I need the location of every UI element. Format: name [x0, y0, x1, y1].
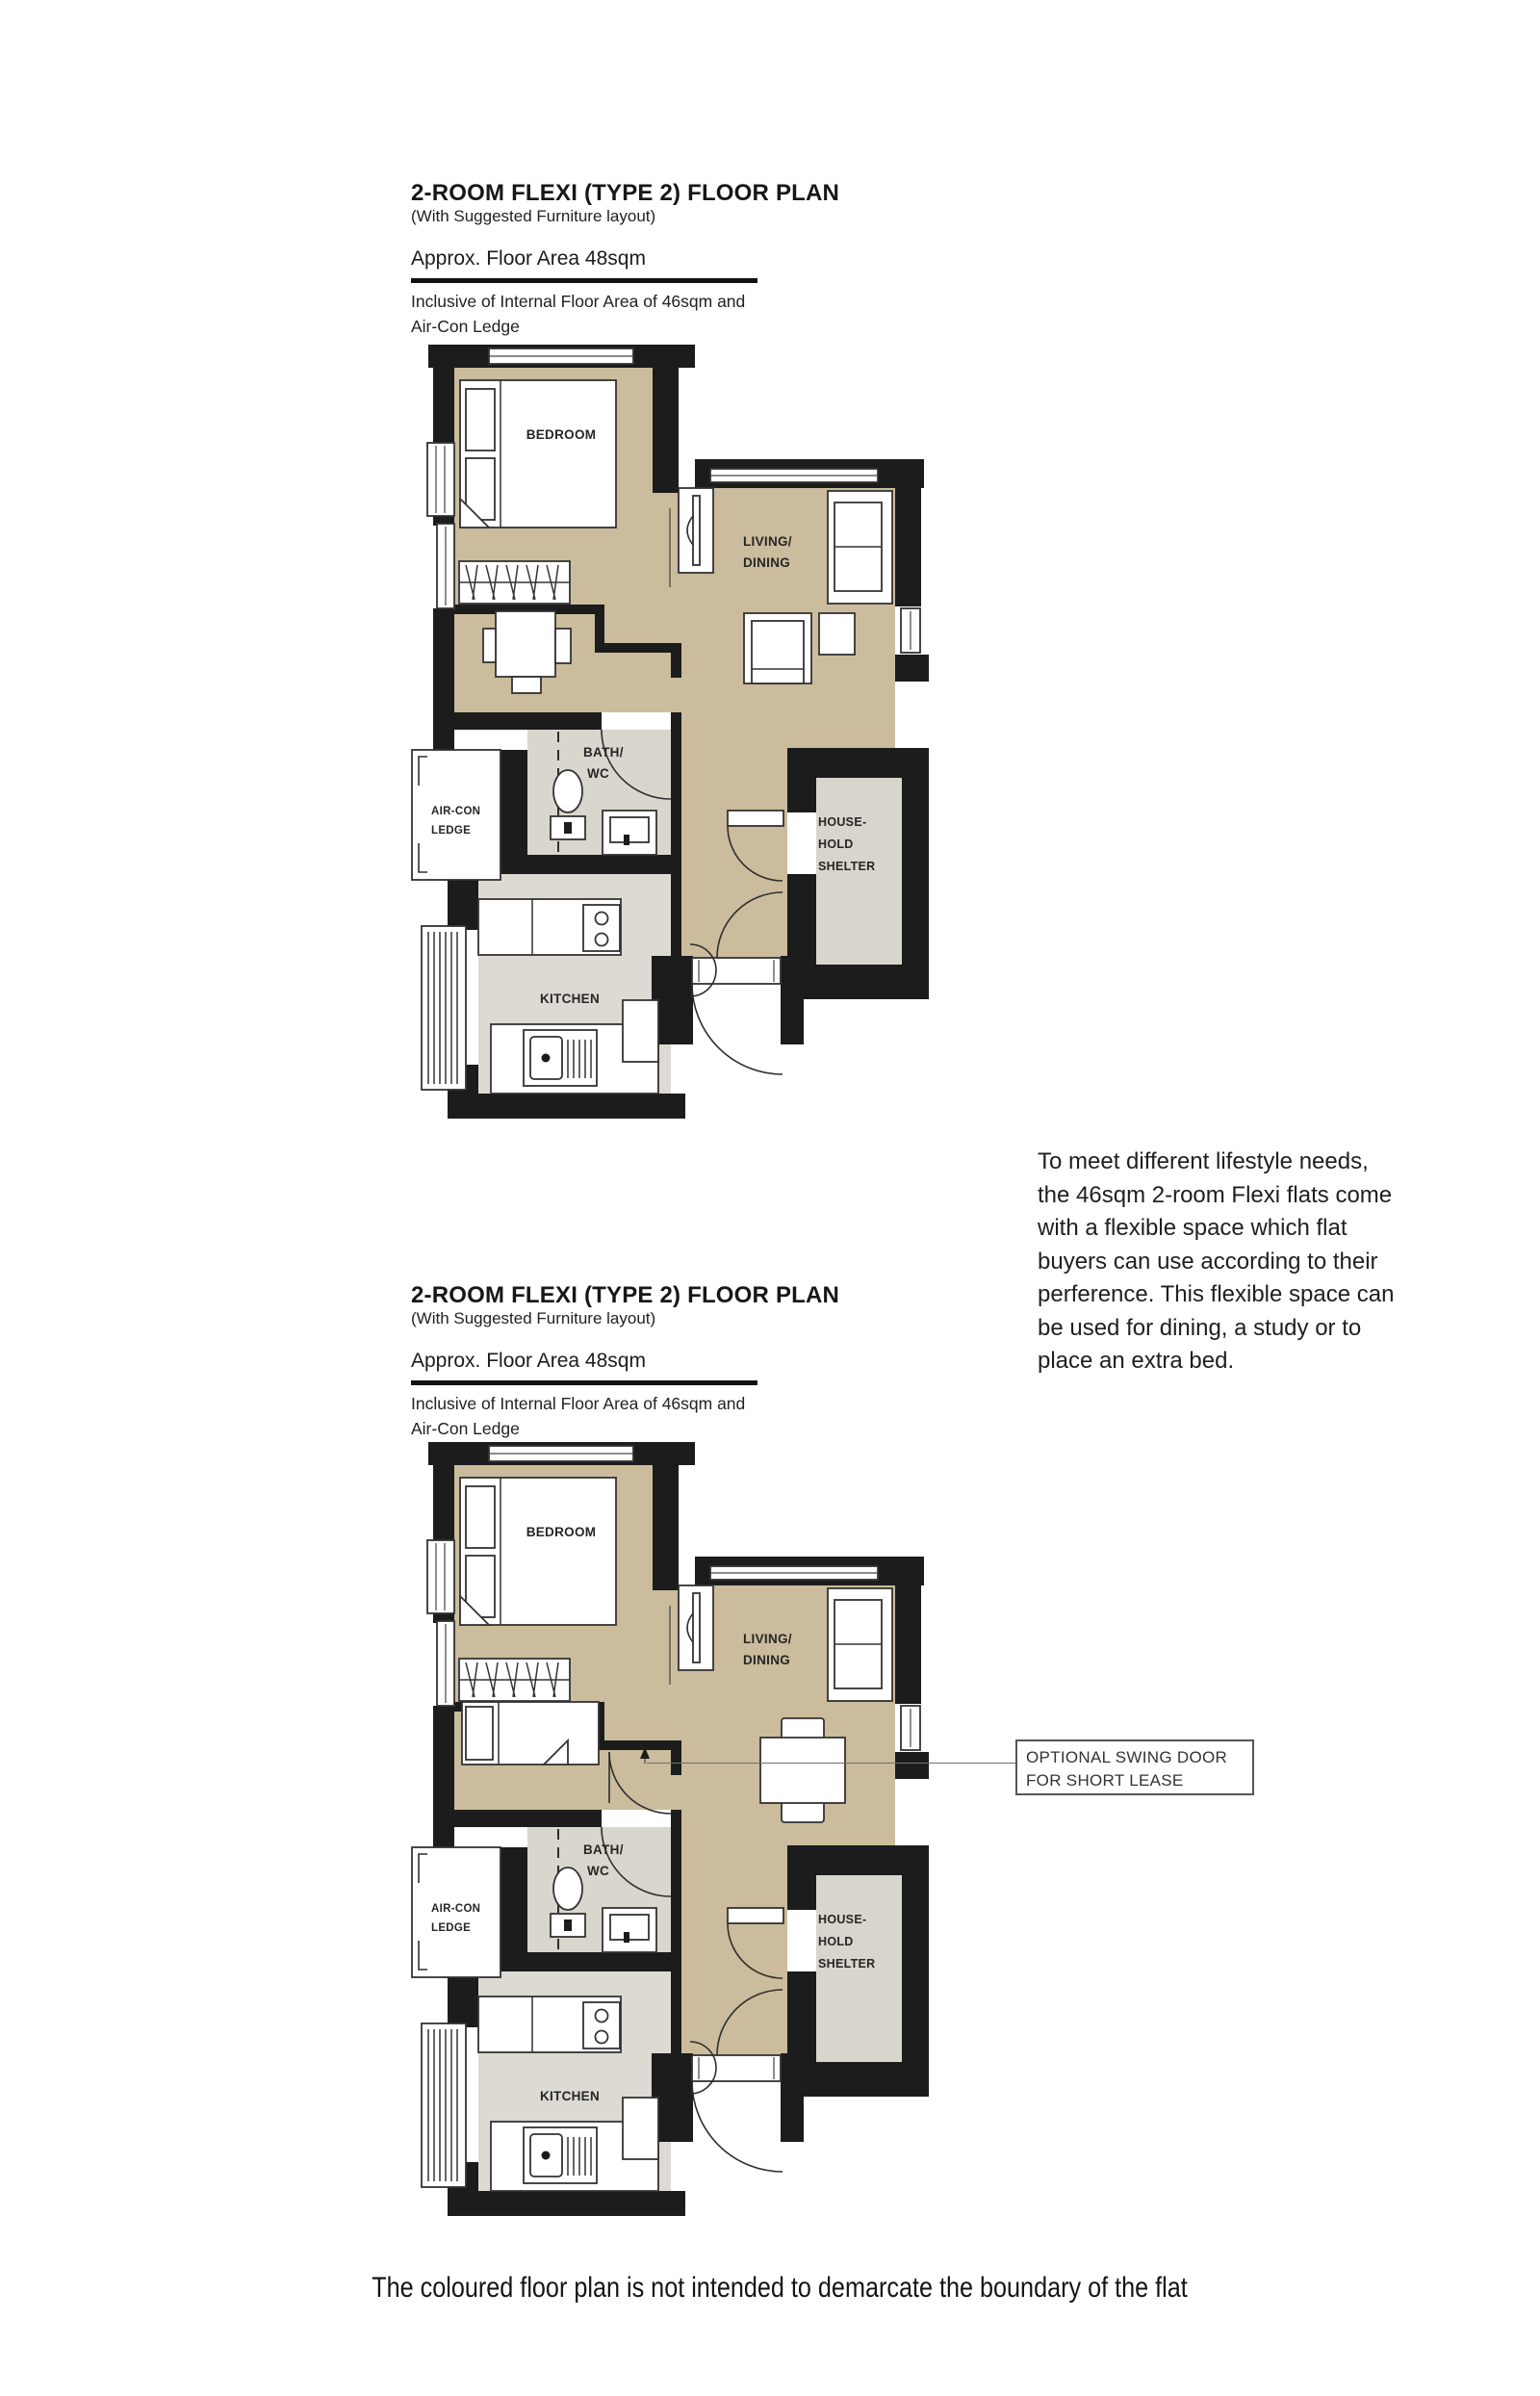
plan1-title: 2-ROOM FLEXI (TYPE 2) FLOOR PLAN — [411, 181, 863, 205]
callout-leader-line — [647, 1763, 1015, 1764]
plan1-living-label-1: LIVING/ — [743, 534, 792, 549]
plan2-single-bed — [462, 1702, 599, 1765]
plan2-title: 2-ROOM FLEXI (TYPE 2) FLOOR PLAN — [411, 1283, 863, 1307]
plan1-sofa — [828, 491, 892, 604]
plan1-inclusive-line2: Air-Con Ledge — [411, 317, 520, 336]
plan2-divider-rule — [411, 1380, 757, 1385]
plan1-divider-rule — [411, 278, 757, 283]
plan2-kitchen-label: KITCHEN — [540, 2089, 600, 2103]
plan1-armchair — [744, 613, 811, 683]
plan1-aircon-label-2: LEDGE — [431, 825, 471, 837]
plan2-living-label-2: DINING — [743, 1653, 790, 1667]
plan1-shelter-label-2: HOLD — [818, 837, 854, 851]
plan2-living-label-1: LIVING/ — [743, 1632, 792, 1646]
plan1-living-label-2: DINING — [743, 555, 790, 570]
plan1-kitchen-label: KITCHEN — [540, 992, 600, 1006]
plan2-aircon-label-2: LEDGE — [431, 1922, 471, 1934]
plan2-wardrobe — [459, 1659, 570, 1701]
plan2-shelter-door-gap — [787, 1910, 816, 1971]
intro-line: To meet different lifestyle needs, — [1038, 1146, 1519, 1179]
plan1-shelter-label-3: SHELTER — [818, 860, 876, 873]
callout-line1: OPTIONAL SWING DOOR — [1026, 1746, 1252, 1769]
plan1-double-bed — [460, 380, 616, 528]
intro-line: buyers can use according to their — [1038, 1246, 1519, 1279]
intro-line: the 46sqm 2-room Flexi flats come — [1038, 1179, 1519, 1213]
floor-plan-2: BEDROOM LIVING/ DINING — [404, 1434, 972, 2224]
plan2-aircon-label-1: AIR-CON — [431, 1903, 480, 1915]
plan1-side-table — [819, 613, 855, 655]
intro-line: place an extra bed. — [1038, 1345, 1519, 1378]
floor-plan-1: BEDROOM LIVING/ DINING — [404, 337, 972, 1126]
plan1-tv-console — [679, 488, 713, 573]
plan2-bath-label-1: BATH/ — [583, 1842, 624, 1857]
plan1-aircon-label-1: AIR-CON — [431, 806, 480, 817]
plan2-sofa — [828, 1588, 892, 1701]
plan1-bath-label-1: BATH/ — [583, 745, 624, 760]
plan1-bath-label-2: WC — [587, 766, 609, 781]
floor-plan-sheet: { "plan1": { "header": { "title": "2-ROO… — [0, 0, 1540, 2396]
plan1-shelter-door-gap — [787, 812, 816, 874]
plan1-wardrobe — [459, 561, 570, 604]
plan1-floor-area: Approx. Floor Area 48sqm — [411, 247, 863, 271]
plan2-shelter-label-1: HOUSE- — [818, 1913, 866, 1926]
intro-line: with a flexible space which flat — [1038, 1212, 1519, 1246]
intro-paragraph: To meet different lifestyle needs, the 4… — [1038, 1146, 1519, 1378]
intro-line: be used for dining, a study or to — [1038, 1312, 1519, 1346]
plan1-inclusive-line1: Inclusive of Internal Floor Area of 46sq… — [411, 292, 745, 311]
plan2-header: 2-ROOM FLEXI (TYPE 2) FLOOR PLAN (With S… — [411, 1283, 863, 1441]
plan1-header: 2-ROOM FLEXI (TYPE 2) FLOOR PLAN (With S… — [411, 181, 863, 339]
plan2-inclusive-line1: Inclusive of Internal Floor Area of 46sq… — [411, 1394, 745, 1413]
optional-swing-door-callout: OPTIONAL SWING DOOR FOR SHORT LEASE — [1015, 1739, 1254, 1795]
plan2-shelter-label-3: SHELTER — [818, 1957, 876, 1971]
plan1-bedroom-label: BEDROOM — [526, 427, 597, 442]
plan1-inclusive-note: Inclusive of Internal Floor Area of 46sq… — [411, 290, 757, 339]
plan1-subtitle: (With Suggested Furniture layout) — [411, 207, 863, 226]
plan2-subtitle: (With Suggested Furniture layout) — [411, 1309, 863, 1328]
intro-line: perference. This flexible space can — [1038, 1278, 1519, 1312]
plan2-bath-label-2: WC — [587, 1864, 609, 1878]
callout-line2: FOR SHORT LEASE — [1026, 1769, 1252, 1792]
plan2-tv-console — [679, 1585, 713, 1670]
plan2-double-bed — [460, 1478, 616, 1625]
disclaimer-text: The coloured floor plan is not intended … — [295, 2272, 1265, 2305]
plan2-bedroom-label: BEDROOM — [526, 1525, 597, 1539]
plan2-floor-area: Approx. Floor Area 48sqm — [411, 1350, 863, 1373]
plan2-shelter-label-2: HOLD — [818, 1935, 854, 1948]
plan1-shelter-label-1: HOUSE- — [818, 815, 866, 829]
